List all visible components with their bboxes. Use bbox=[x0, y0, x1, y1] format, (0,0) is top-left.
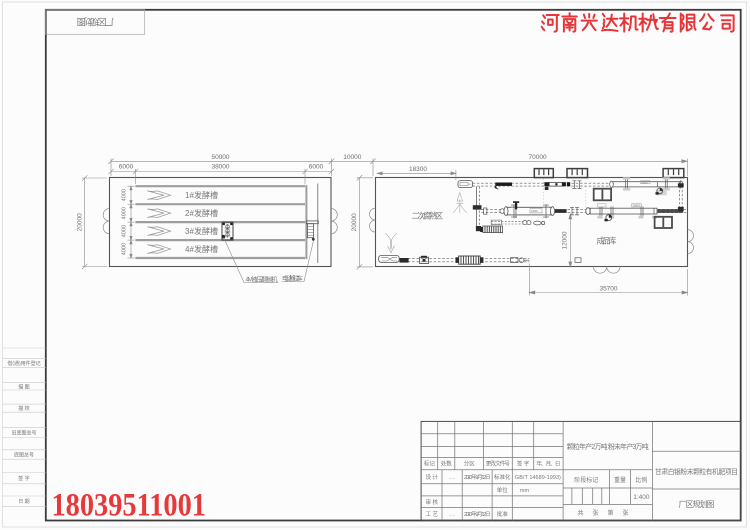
svg-text:12000: 12000 bbox=[562, 231, 569, 249]
svg-text:70000: 70000 bbox=[529, 154, 547, 161]
svg-text:甘肃白银粉末颗粒有机肥项目: 甘肃白银粉末颗粒有机肥项目 bbox=[655, 467, 738, 476]
svg-text:30800: 30800 bbox=[633, 204, 641, 208]
svg-text:底图总号: 底图总号 bbox=[14, 452, 34, 459]
svg-text:成品库: 成品库 bbox=[597, 236, 617, 246]
svg-text:批准: 批准 bbox=[497, 510, 509, 518]
svg-text:50000: 50000 bbox=[211, 154, 229, 161]
svg-text:6000: 6000 bbox=[119, 164, 134, 171]
svg-text:签 字: 签 字 bbox=[517, 460, 530, 468]
svg-text:9600: 9600 bbox=[642, 180, 649, 184]
svg-text:工 艺: 工 艺 bbox=[426, 511, 439, 518]
svg-text:…..: ….. bbox=[448, 475, 455, 480]
svg-text:标记: 标记 bbox=[424, 460, 436, 468]
svg-text:4#发酵槽: 4#发酵槽 bbox=[185, 244, 218, 254]
svg-text:GB/T 14689-1993): GB/T 14689-1993) bbox=[515, 475, 561, 481]
svg-text:10000: 10000 bbox=[343, 154, 361, 161]
svg-text:二次腐熟区: 二次腐熟区 bbox=[412, 211, 444, 221]
svg-text:4000: 4000 bbox=[122, 207, 128, 219]
svg-text:3#发酵槽: 3#发酵槽 bbox=[185, 226, 218, 236]
svg-text:阶段标记: 阶段标记 bbox=[574, 476, 598, 484]
svg-text:描 校: 描 校 bbox=[18, 405, 29, 412]
svg-text:…..: ….. bbox=[448, 512, 455, 517]
svg-text:分区: 分区 bbox=[464, 460, 476, 468]
svg-text:标准化: 标准化 bbox=[494, 473, 511, 481]
svg-text:4M液压翻抛机: 4M液压翻抛机 bbox=[246, 274, 279, 283]
svg-text:电动移位车: 电动移位车 bbox=[282, 273, 304, 282]
svg-text:日 期: 日 期 bbox=[18, 499, 29, 505]
svg-text:4000: 4000 bbox=[122, 189, 128, 201]
svg-text:借(通)用件登记: 借(通)用件登记 bbox=[7, 360, 40, 367]
svg-text:厂区规划图: 厂区规划图 bbox=[679, 499, 715, 509]
svg-text:2480: 2480 bbox=[531, 209, 538, 213]
svg-text:mm: mm bbox=[520, 488, 530, 494]
svg-text:签 字: 签 字 bbox=[18, 475, 29, 482]
svg-text:6000: 6000 bbox=[309, 164, 324, 171]
svg-text:描 图: 描 图 bbox=[18, 383, 29, 390]
svg-text:比例: 比例 bbox=[635, 476, 647, 484]
svg-text:颗粒年产2万吨 粉末年产3万吨: 颗粒年产2万吨 粉末年产3万吨 bbox=[567, 442, 649, 451]
svg-text:重量: 重量 bbox=[614, 476, 626, 484]
svg-text:2020年9月12日: 2020年9月12日 bbox=[464, 473, 491, 481]
svg-text:1#发酵槽: 1#发酵槽 bbox=[185, 190, 218, 200]
svg-text:4000: 4000 bbox=[122, 225, 128, 237]
svg-text:1:400: 1:400 bbox=[633, 494, 650, 501]
svg-text:18039511001: 18039511001 bbox=[52, 488, 207, 524]
svg-text:2020年9月12日: 2020年9月12日 bbox=[464, 510, 491, 518]
svg-text:年、月、日: 年、月、日 bbox=[536, 460, 560, 468]
svg-text:厂区规划图: 厂区规划图 bbox=[77, 17, 114, 28]
svg-text:4000: 4000 bbox=[122, 243, 128, 255]
svg-text:18300: 18300 bbox=[409, 166, 427, 173]
svg-text:处数: 处数 bbox=[441, 460, 453, 468]
svg-text:20000: 20000 bbox=[77, 213, 84, 231]
svg-text:单位: 单位 bbox=[497, 486, 509, 494]
svg-text:20000: 20000 bbox=[351, 213, 358, 231]
svg-text:旧底图总号: 旧底图总号 bbox=[11, 430, 36, 437]
svg-text:更改文件号: 更改文件号 bbox=[486, 460, 510, 468]
svg-text:2#发酵槽: 2#发酵槽 bbox=[185, 208, 218, 218]
svg-text:设 计: 设 计 bbox=[426, 473, 439, 481]
svg-text:38000: 38000 bbox=[211, 164, 229, 171]
svg-text:35700: 35700 bbox=[599, 286, 617, 293]
svg-text:审 核: 审 核 bbox=[426, 498, 439, 506]
